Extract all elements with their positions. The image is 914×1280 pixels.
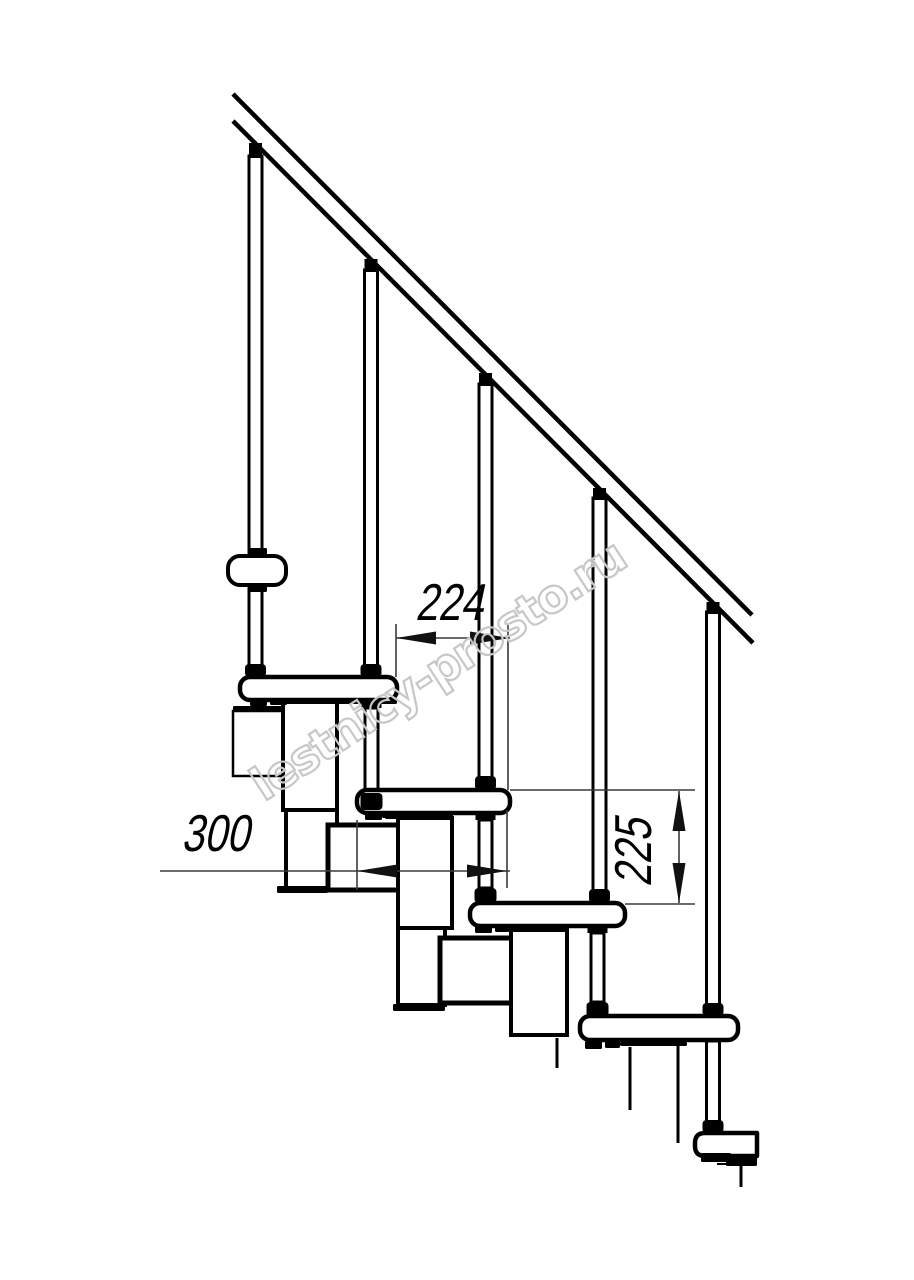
support-post-2 — [479, 820, 492, 888]
baluster-post-5-lower — [707, 1041, 720, 1127]
baluster-collar-5 — [703, 1003, 724, 1016]
baluster-collar-1 — [245, 664, 266, 677]
baluster-post-5 — [707, 612, 720, 1016]
rail-connector-2 — [365, 259, 378, 272]
tread-3 — [470, 903, 625, 926]
fitting-pad — [585, 1041, 602, 1049]
baluster-collar-2 — [361, 664, 382, 677]
rail-connector-5 — [707, 602, 720, 614]
stair-technical-drawing-page: 224300225lestnicy-prosto.ru — [0, 0, 914, 1280]
support-pad-3 — [588, 926, 608, 933]
rail-clamp-bar — [228, 556, 286, 585]
module-box-square — [328, 825, 403, 890]
drawing-canvas: 224300225lestnicy-prosto.ru — [0, 0, 914, 1280]
baluster-post-2 — [365, 270, 378, 677]
dim-label-300: 300 — [179, 805, 259, 863]
fitting-pad — [475, 925, 492, 933]
fitting-pad — [726, 1157, 757, 1166]
fitting-pad — [249, 584, 267, 592]
baluster-post-1 — [249, 156, 262, 677]
dim-label-225: 225 — [605, 809, 663, 889]
module-box — [511, 930, 567, 1035]
watermark-group: lestnicy-prosto.ru — [241, 529, 635, 811]
fitting-pad — [250, 698, 267, 706]
rail-connector-1 — [249, 143, 262, 158]
dimension-arrow-down — [673, 863, 686, 903]
fitting-pad — [270, 698, 287, 705]
rail-connector-3 — [479, 373, 492, 386]
watermark-text: lestnicy-prosto.ru — [241, 529, 635, 811]
baluster-collar-3 — [475, 776, 496, 790]
fitting-pad — [382, 813, 453, 818]
fitting-pad — [277, 886, 328, 893]
module-box-square — [440, 938, 516, 1003]
dimension-arrow-up — [673, 791, 686, 831]
module-box — [398, 818, 452, 928]
fitting-pad — [365, 813, 382, 820]
tread-4 — [580, 1016, 738, 1040]
fitting-pad — [507, 926, 567, 932]
fitting-pad — [249, 548, 267, 557]
support-collar-3 — [587, 1002, 609, 1017]
support-collar-2 — [475, 888, 497, 903]
fitting-pad — [233, 706, 283, 712]
support-post-3 — [591, 933, 604, 1002]
fitting-pad — [605, 1041, 620, 1048]
baluster-collar-4 — [589, 889, 610, 903]
support-pad-2 — [476, 812, 496, 820]
fitting-pad — [620, 1042, 687, 1046]
rail-connector-4 — [593, 488, 606, 500]
support-collar-1 — [361, 793, 383, 810]
fitting-pad — [393, 1004, 445, 1011]
baluster-collar-5-lower — [703, 1120, 724, 1133]
fitting-pad — [495, 925, 508, 932]
tread-5-cut — [695, 1133, 757, 1156]
